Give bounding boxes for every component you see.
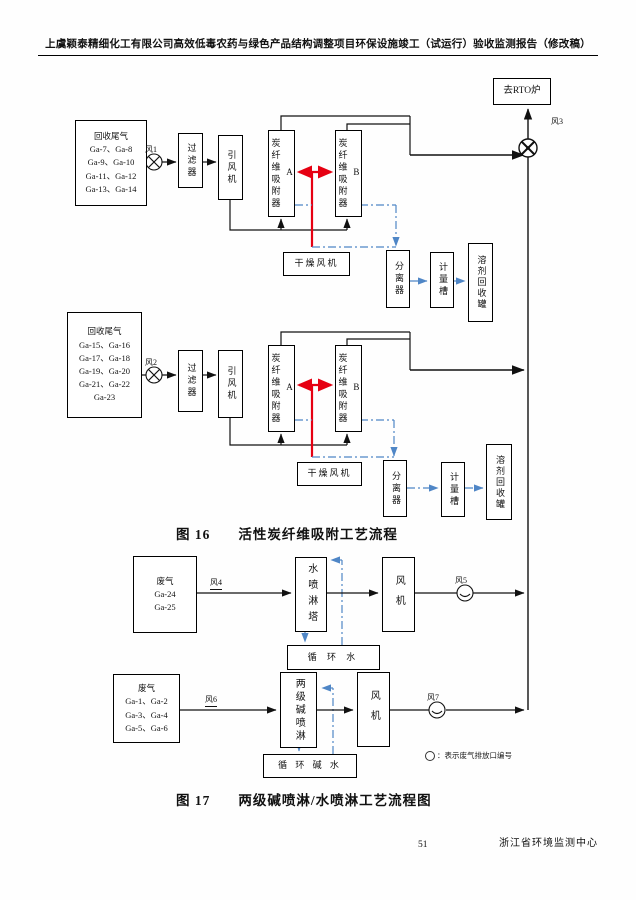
water-source-gas-box: 废气 Ga-24 Ga-25: [133, 556, 197, 633]
outlet-legend: ：表示废气排放口编号: [425, 750, 512, 761]
unit2-meter-tank-box: 计量槽: [441, 462, 465, 517]
fan2-label: 风2: [145, 359, 157, 367]
steam-lines-red: [299, 172, 331, 457]
water-duct-label: 风4: [210, 579, 222, 590]
page-number: 51: [418, 840, 428, 850]
unit2-recovery-tank-box: 溶剂回收罐: [486, 444, 512, 520]
unit1-separator-box: 分离器: [386, 250, 410, 308]
fan1-icon: [146, 154, 162, 170]
unit2-source-gas-box: 回收尾气 Ga-15、Ga-16 Ga-17、Ga-18 Ga-19、Ga-20…: [67, 312, 142, 418]
fig17-caption-title: 两级碱喷淋/水喷淋工艺流程图: [238, 793, 431, 808]
unit2-separator-box: 分离器: [383, 460, 407, 517]
fig17-caption-number: 图 17: [176, 793, 210, 808]
outlet-legend-text: ：表示废气排放口编号: [437, 750, 512, 761]
unit2-dry-fan-box: 干燥风机: [297, 462, 362, 486]
unit2-adsorber-a-box: 炭纤维吸附器A: [268, 345, 295, 432]
fan1-label: 风1: [145, 146, 157, 154]
outlet7-icon: [429, 702, 445, 718]
alkali-fan-box: 风机: [357, 672, 390, 747]
unit2-blower-box: 引风机: [218, 350, 243, 418]
footer-organization: 浙江省环境监测中心: [499, 834, 598, 849]
unit1-blower-box: 引风机: [218, 135, 243, 200]
water-outlet-label: 风5: [455, 577, 467, 585]
outlet-legend-circle-icon: [425, 751, 435, 761]
unit1-adsorber-b-box: 炭纤维吸附器B: [335, 130, 362, 217]
rto-furnace-box: 去RTO炉: [493, 78, 551, 105]
unit1-recovery-tank-box: 溶剂回收罐: [468, 243, 493, 322]
unit1-source-gas-box: 回收尾气 Ga-7、Ga-8 Ga-9、Ga-10 Ga-11、Ga-12 Ga…: [75, 120, 147, 206]
report-page: 上虞颖泰精细化工有限公司高效低毒农药与绿色产品结构调整项目环保设施竣工（试运行）…: [0, 0, 636, 900]
fig16-caption-number: 图 16: [176, 527, 210, 542]
alkali-source-gas-box: 废气 Ga-1、Ga-2 Ga-3、Ga-4 Ga-5、Ga-6: [113, 674, 180, 743]
alkali-outlet-label: 风7: [427, 694, 439, 702]
water-fan-box: 风机: [382, 557, 415, 632]
outlet5-icon: [457, 585, 473, 601]
unit2-adsorber-b-box: 炭纤维吸附器B: [335, 345, 362, 432]
fan2-icon: [146, 367, 162, 383]
fan3-label: 风3: [551, 118, 563, 126]
unit1-filter-box: 过滤器: [178, 133, 203, 188]
water-spray-tower-box: 水喷淋塔: [295, 557, 327, 632]
unit1-adsorber-a-box: 炭纤维吸附器A: [268, 130, 295, 217]
alkali-duct-label: 风6: [205, 696, 217, 707]
circulating-water-box: 循 环 水: [287, 645, 380, 670]
alkali-spray-tower-box: 两级碱喷淋: [280, 672, 317, 748]
unit1-meter-tank-box: 计量槽: [430, 252, 454, 308]
fan3-icon: [519, 139, 537, 157]
fig16-caption: 图 16活性炭纤维吸附工艺流程: [176, 523, 398, 543]
circulating-alkali-water-box: 循 环 碱 水: [263, 754, 357, 778]
fig17-caption: 图 17两级碱喷淋/水喷淋工艺流程图: [176, 789, 432, 809]
unit1-dry-fan-box: 干燥风机: [283, 252, 350, 276]
unit2-filter-box: 过滤器: [178, 350, 203, 412]
fig16-caption-title: 活性炭纤维吸附工艺流程: [238, 527, 398, 542]
